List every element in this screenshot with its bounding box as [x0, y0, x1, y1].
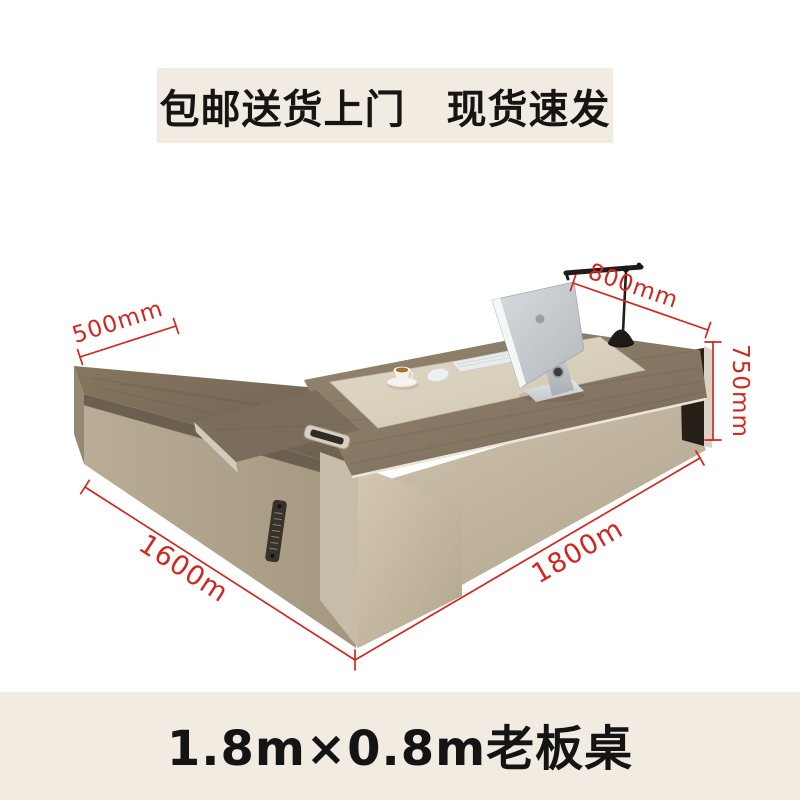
product-image: 包邮送货上门 现货速发	[0, 0, 800, 800]
dimension-label-750mm: 750mm	[727, 344, 753, 438]
apple-logo	[536, 315, 545, 324]
dimension-label-500mm: 500mm	[69, 296, 166, 349]
caption-band: 1.8m×0.8m老板桌	[0, 692, 800, 800]
desk-illustration: 500mm 800mm 750mm 1600m 1800m	[0, 0, 800, 800]
caption-text: 1.8m×0.8m老板桌	[167, 709, 633, 779]
